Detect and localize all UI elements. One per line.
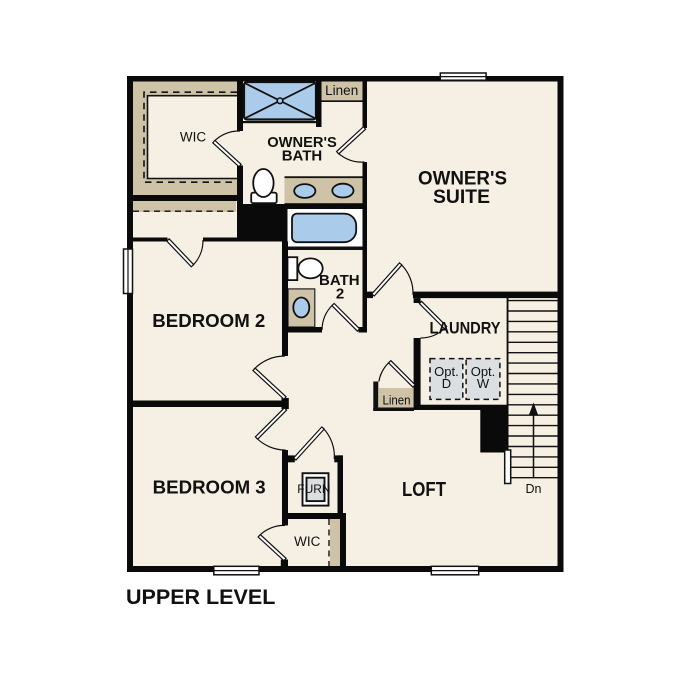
svg-text:BEDROOM 3: BEDROOM 3 — [153, 478, 266, 498]
svg-text:BEDROOM 2: BEDROOM 2 — [152, 311, 265, 331]
svg-text:Linen: Linen — [325, 83, 358, 98]
svg-text:UPPER LEVEL: UPPER LEVEL — [126, 585, 275, 609]
svg-text:2: 2 — [336, 286, 344, 303]
svg-text:Dn: Dn — [526, 482, 542, 496]
svg-text:W: W — [477, 376, 490, 391]
svg-text:D: D — [442, 376, 451, 391]
svg-text:WIC: WIC — [180, 130, 206, 145]
svg-text:WIC: WIC — [294, 534, 320, 549]
svg-text:Linen: Linen — [383, 393, 411, 408]
svg-text:FURN: FURN — [297, 482, 330, 496]
svg-text:LAUNDRY: LAUNDRY — [430, 319, 502, 338]
svg-text:LOFT: LOFT — [402, 479, 446, 501]
svg-text:SUITE: SUITE — [433, 187, 490, 208]
svg-text:BATH: BATH — [282, 148, 323, 165]
